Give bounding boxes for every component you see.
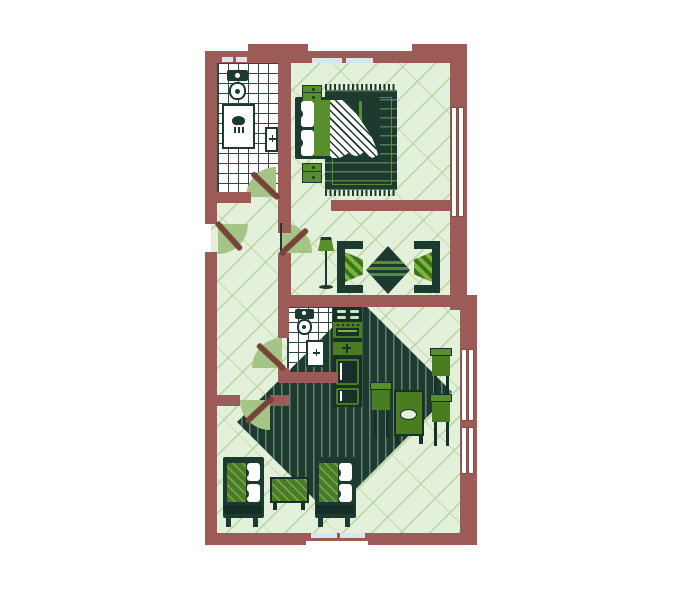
basin-faucet-cross <box>272 135 274 142</box>
coffee-table-leg <box>301 503 305 510</box>
bedroom-window <box>459 108 463 216</box>
dining-plate <box>400 409 417 420</box>
living-room-window <box>462 350 466 420</box>
bedroom-window <box>452 108 456 216</box>
dining-chair-seat <box>432 356 450 376</box>
armchair-arm <box>414 285 440 293</box>
wall-wc-left-upper <box>278 307 289 338</box>
coffee-table <box>270 477 309 503</box>
stove-burner <box>350 310 359 313</box>
nightstand <box>302 163 322 183</box>
table-leg <box>419 436 423 444</box>
sofa-pillow <box>339 463 352 481</box>
wall-hall-living-left <box>211 395 240 406</box>
oven-knob-row <box>337 324 359 326</box>
sofa-leg <box>226 517 231 527</box>
refrigerator-handle <box>340 391 342 401</box>
wc-toilet-button <box>302 311 306 315</box>
wall-vent <box>236 57 247 62</box>
floor-lamp-base <box>319 285 333 289</box>
sink-faucet-cross <box>346 344 348 353</box>
wall-vent <box>312 58 342 63</box>
dining-chair-back <box>370 382 392 390</box>
floor-plan-canvas <box>0 0 675 600</box>
table-leg <box>395 436 399 444</box>
chair-leg <box>386 410 389 438</box>
living-room-window <box>469 428 473 473</box>
wall-sitting-bottom <box>278 295 477 307</box>
shower-head-icon <box>232 116 245 125</box>
stove-burner <box>337 310 346 313</box>
living-room-window <box>469 350 473 420</box>
armchair-arm <box>337 285 363 293</box>
chair-leg <box>434 422 437 446</box>
wall-bedroom-bottom <box>331 200 467 211</box>
wall-vent <box>222 57 233 62</box>
wall-bathroom-bottom <box>211 192 251 203</box>
shower-drip <box>242 127 244 133</box>
coffee-table-leg <box>273 503 277 510</box>
dining-chair-back <box>430 394 452 402</box>
shower-drip <box>234 127 236 133</box>
sofa-pillow <box>247 463 260 481</box>
living-room-window <box>462 428 466 473</box>
armchair-arm <box>414 241 440 249</box>
sofa-blanket <box>227 463 246 502</box>
wall-vent <box>346 58 373 63</box>
stove-burner <box>337 316 346 319</box>
sofa-leg <box>345 517 350 527</box>
dining-chair-back <box>430 348 452 356</box>
wc-toilet-dot <box>302 325 306 329</box>
sofa-pillow <box>339 484 352 502</box>
chair-leg <box>374 410 377 438</box>
sofa-pillow <box>247 484 260 502</box>
wall-bathroom-bedroom-divider <box>278 51 291 203</box>
wall-wc-bottom <box>278 372 338 383</box>
sofa-base <box>224 505 262 514</box>
wc-basin-faucet-cross <box>316 349 318 356</box>
oven-window-line <box>338 330 357 332</box>
exterior-step <box>306 541 368 556</box>
bed-pillow <box>301 101 314 127</box>
wall-vent <box>311 533 337 538</box>
armchair-arm <box>337 241 363 249</box>
refrigerator-handle <box>340 363 342 380</box>
bedroom-rug-fringe-bottom <box>325 190 397 196</box>
bed-pillow <box>301 130 314 156</box>
floor-lamp-pole <box>325 251 327 285</box>
wall-segment-right-lower <box>460 295 477 545</box>
sofa-leg <box>318 517 323 527</box>
chair-leg <box>446 422 449 446</box>
sofa-base <box>316 505 354 514</box>
shower-drip <box>238 127 240 133</box>
dining-chair-seat <box>432 402 450 422</box>
toilet-tank-button <box>235 73 240 78</box>
stove-burner <box>350 316 359 319</box>
sofa-leg <box>253 517 258 527</box>
dining-chair-seat <box>372 390 390 410</box>
toilet-drain-dot <box>235 89 240 94</box>
sofa-blanket <box>319 463 338 502</box>
wall-vent <box>340 533 365 538</box>
